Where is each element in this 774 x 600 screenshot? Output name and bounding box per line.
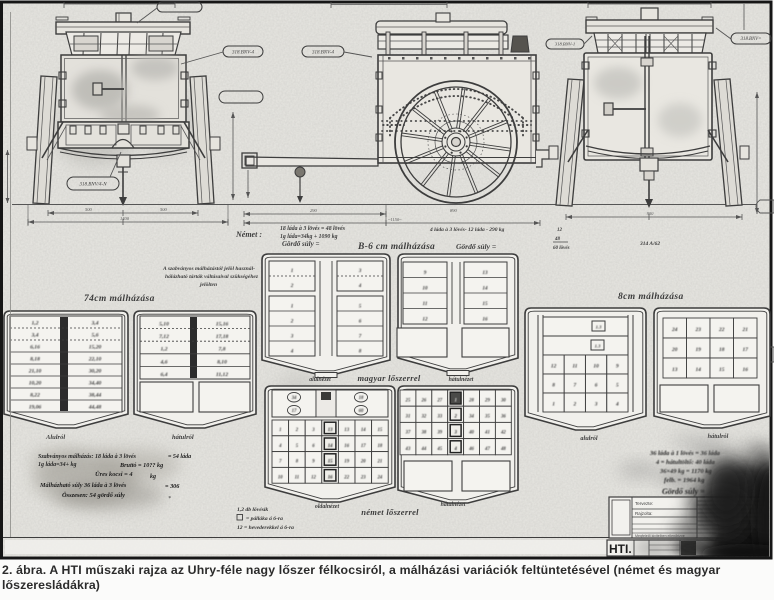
svg-text:11: 11 bbox=[295, 475, 300, 480]
svg-text:Bruttó = 10?? kg: Bruttó = 10?? kg bbox=[119, 462, 163, 469]
svg-text:21: 21 bbox=[742, 327, 749, 333]
svg-text:alulnézet: alulnézet bbox=[309, 377, 331, 383]
svg-text:2: 2 bbox=[453, 415, 457, 420]
svg-text:22,10: 22,10 bbox=[88, 357, 102, 363]
svg-text:48: 48 bbox=[500, 447, 506, 452]
svg-text:10: 10 bbox=[278, 475, 283, 480]
svg-text:318.BNV/4-N: 318.BNV/4-N bbox=[79, 182, 107, 187]
svg-text:43: 43 bbox=[405, 447, 411, 452]
svg-text:10,20: 10,20 bbox=[29, 381, 42, 387]
svg-text:23: 23 bbox=[695, 327, 702, 333]
svg-text:16: 16 bbox=[743, 367, 749, 373]
svg-text:33: 33 bbox=[436, 415, 442, 420]
svg-text:16: 16 bbox=[328, 475, 333, 480]
svg-text:48: 48 bbox=[554, 237, 561, 242]
svg-text:44,48: 44,48 bbox=[88, 405, 102, 411]
svg-text:12 = hevederekkel á 6-ra: 12 = hevederekkel á 6-ra bbox=[237, 525, 294, 531]
svg-text:8,18: 8,18 bbox=[30, 357, 40, 363]
svg-text:27: 27 bbox=[436, 398, 442, 403]
svg-text:16: 16 bbox=[344, 444, 349, 449]
svg-text:1: 1 bbox=[454, 398, 456, 403]
svg-text:318.BNV-4: 318.BNV-4 bbox=[312, 50, 335, 55]
svg-text:22: 22 bbox=[718, 327, 725, 333]
svg-text:32: 32 bbox=[420, 415, 426, 420]
svg-text:1: 1 bbox=[291, 268, 294, 274]
svg-text:30: 30 bbox=[500, 398, 506, 403]
svg-text:6,4: 6,4 bbox=[161, 372, 168, 378]
svg-text:1g láda=34+ kg: 1g láda=34+ kg bbox=[38, 462, 77, 468]
svg-text:10: 10 bbox=[593, 364, 599, 370]
svg-text:14: 14 bbox=[482, 286, 488, 292]
svg-text:10: 10 bbox=[422, 286, 428, 292]
svg-text:1,2: 1,2 bbox=[161, 347, 168, 353]
svg-text:20: 20 bbox=[360, 460, 366, 465]
svg-text:A szabványos málházástól jelöl: A szabványos málházástól jelöl használ- bbox=[162, 266, 255, 272]
svg-text:1: 1 bbox=[279, 428, 281, 433]
svg-text:Német :: Német : bbox=[235, 230, 262, 239]
svg-text:18 láda à 3 lövés = 48 lövés: 18 láda à 3 lövés = 48 lövés bbox=[280, 226, 346, 232]
svg-text:kg: kg bbox=[150, 474, 156, 480]
svg-text:2. ábra. A HTI műszaki rajza a: 2. ábra. A HTI műszaki rajza az Uhry-fél… bbox=[2, 563, 721, 577]
svg-text:17: 17 bbox=[743, 347, 749, 353]
svg-text:11,12: 11,12 bbox=[216, 372, 228, 378]
svg-text:37: 37 bbox=[405, 431, 411, 436]
svg-text:1: 1 bbox=[552, 402, 555, 408]
svg-text:Gördő súly =: Gördő súly = bbox=[456, 242, 496, 251]
svg-text:34,40: 34,40 bbox=[88, 381, 102, 387]
svg-text:Málházható súly 36 láda à 3 lö: Málházható súly 36 láda à 3 lövés bbox=[39, 482, 127, 489]
svg-text:12: 12 bbox=[557, 228, 563, 233]
svg-text:4: 4 bbox=[290, 349, 294, 355]
svg-text:13: 13 bbox=[672, 367, 678, 373]
svg-text:1: 1 bbox=[291, 304, 294, 310]
svg-text:2: 2 bbox=[573, 402, 577, 408]
svg-text:24: 24 bbox=[377, 475, 383, 480]
svg-text:18: 18 bbox=[359, 396, 364, 401]
svg-text:2: 2 bbox=[295, 428, 299, 433]
svg-text:B-6 cm málházása: B-6 cm málházása bbox=[357, 242, 435, 252]
svg-text:60 lövés: 60 lövés bbox=[553, 246, 570, 251]
svg-text:5: 5 bbox=[359, 304, 362, 310]
svg-text:1.3: 1.3 bbox=[595, 344, 601, 349]
svg-text:1.3: 1.3 bbox=[596, 325, 602, 330]
svg-text:24: 24 bbox=[671, 327, 678, 333]
svg-text:318.BNV-4: 318.BNV-4 bbox=[232, 50, 255, 55]
svg-text:12: 12 bbox=[422, 317, 428, 323]
svg-text:4: 4 bbox=[278, 444, 282, 449]
svg-text:17: 17 bbox=[292, 409, 297, 414]
svg-text:HTI.: HTI. bbox=[609, 542, 632, 556]
svg-text:Alulról: Alulról bbox=[45, 434, 65, 441]
svg-text:9: 9 bbox=[424, 270, 427, 276]
svg-text:3: 3 bbox=[453, 431, 457, 436]
svg-text:7: 7 bbox=[359, 334, 362, 340]
svg-text:314 A/62: 314 A/62 bbox=[639, 241, 660, 247]
svg-text:3: 3 bbox=[358, 268, 362, 274]
svg-text:2: 2 bbox=[290, 283, 294, 289]
svg-text:hálázható tárták váltásaival s: hálázható tárták váltásaival szükségéhez bbox=[165, 274, 259, 280]
svg-text:41: 41 bbox=[484, 431, 490, 436]
svg-text:15: 15 bbox=[378, 428, 383, 433]
svg-text:500: 500 bbox=[85, 207, 93, 212]
svg-text:Tervezte:: Tervezte: bbox=[635, 501, 653, 506]
svg-text:15: 15 bbox=[328, 460, 333, 465]
svg-text:8: 8 bbox=[359, 349, 362, 355]
svg-text:8,22: 8,22 bbox=[30, 393, 40, 399]
svg-text:5: 5 bbox=[616, 383, 619, 389]
svg-text:15,20: 15,20 bbox=[89, 345, 102, 351]
svg-text:11: 11 bbox=[423, 301, 428, 307]
svg-text:22: 22 bbox=[343, 475, 349, 480]
svg-text:890: 890 bbox=[450, 208, 458, 213]
svg-text:7,8: 7,8 bbox=[219, 347, 226, 353]
svg-text:oldalnézet: oldalnézet bbox=[315, 504, 340, 510]
svg-text:31: 31 bbox=[405, 415, 411, 420]
svg-text:17: 17 bbox=[361, 444, 366, 449]
svg-text:60: 60 bbox=[359, 409, 364, 414]
svg-text:36: 36 bbox=[500, 415, 506, 420]
svg-text:német lőszerrel: német lőszerrel bbox=[361, 507, 419, 517]
svg-text:3: 3 bbox=[290, 334, 294, 340]
svg-text:3,4: 3,4 bbox=[31, 333, 39, 339]
svg-text:1400: 1400 bbox=[120, 216, 130, 221]
svg-text:3,4: 3,4 bbox=[91, 321, 99, 327]
svg-text:3: 3 bbox=[311, 428, 315, 433]
svg-text:25: 25 bbox=[405, 398, 411, 403]
svg-text:45: 45 bbox=[436, 447, 442, 452]
svg-text:= 306: = 306 bbox=[165, 483, 180, 490]
svg-text:8cm málházása: 8cm málházása bbox=[618, 292, 684, 302]
svg-text:13: 13 bbox=[328, 428, 333, 433]
svg-text:8,10: 8,10 bbox=[217, 359, 227, 365]
svg-text:1,2: 1,2 bbox=[32, 321, 39, 327]
svg-text:13: 13 bbox=[344, 428, 349, 433]
svg-text:15: 15 bbox=[482, 301, 488, 307]
svg-text:6: 6 bbox=[359, 319, 362, 325]
svg-text:42: 42 bbox=[500, 431, 506, 436]
svg-text:47: 47 bbox=[484, 447, 490, 452]
svg-text:40: 40 bbox=[468, 431, 474, 436]
svg-text:21,10: 21,10 bbox=[28, 369, 42, 375]
svg-text:Üres kocsi = 4: Üres kocsi = 4 bbox=[95, 471, 133, 478]
svg-text:13: 13 bbox=[482, 270, 488, 276]
svg-text:Szabványos málházás: 18 láda à: Szabványos málházás: 18 láda à 3 lövés bbox=[38, 454, 137, 460]
svg-text:= pálláka á 6-ra: = pálláka á 6-ra bbox=[246, 516, 283, 522]
svg-text:1,2 db lövésik: 1,2 db lövésik bbox=[237, 507, 268, 513]
svg-text:29: 29 bbox=[484, 398, 490, 403]
svg-text:19: 19 bbox=[696, 347, 702, 353]
svg-text:44: 44 bbox=[420, 447, 426, 452]
svg-text:30,20: 30,20 bbox=[88, 369, 102, 375]
svg-text:Rajzolta:: Rajzolta: bbox=[635, 511, 653, 516]
svg-text:*: * bbox=[168, 496, 171, 502]
svg-text:4: 4 bbox=[453, 447, 457, 452]
svg-text:5,6: 5,6 bbox=[92, 333, 99, 339]
svg-text:jelölten: jelölten bbox=[199, 282, 217, 288]
svg-text:46: 46 bbox=[468, 447, 474, 452]
svg-text:4 láda à 3 lövés- 12 láda -: 4 láda à 3 lövés- 12 láda - 290 kg bbox=[429, 227, 505, 233]
svg-text:35: 35 bbox=[484, 415, 490, 420]
svg-text:26: 26 bbox=[420, 398, 426, 403]
svg-text:4: 4 bbox=[358, 283, 362, 289]
svg-text:15,16: 15,16 bbox=[216, 321, 229, 327]
svg-text:Összesen: 54 gördő súly: Összesen: 54 gördő súly bbox=[62, 492, 125, 499]
svg-text:39: 39 bbox=[436, 431, 442, 436]
svg-text:7: 7 bbox=[574, 383, 577, 389]
svg-text:8: 8 bbox=[552, 383, 555, 389]
svg-text:900: 900 bbox=[647, 211, 655, 216]
svg-text:14: 14 bbox=[361, 428, 366, 433]
svg-text:290: 290 bbox=[310, 208, 318, 213]
svg-text:hátulról: hátulról bbox=[172, 434, 194, 441]
svg-text:12: 12 bbox=[311, 475, 316, 480]
svg-text:alulról: alulról bbox=[580, 435, 597, 442]
svg-text:9: 9 bbox=[616, 364, 619, 370]
svg-text:34: 34 bbox=[291, 396, 297, 401]
svg-text:18: 18 bbox=[719, 347, 725, 353]
svg-text:= 54 láda: = 54 láda bbox=[168, 454, 191, 460]
svg-text:Gördő súly =: Gördő súly = bbox=[282, 240, 319, 248]
svg-text:14: 14 bbox=[696, 367, 702, 373]
svg-text:12: 12 bbox=[551, 364, 557, 370]
svg-text:magyar lőszerrel: magyar lőszerrel bbox=[357, 373, 420, 383]
svg-text:4,6: 4,6 bbox=[160, 359, 168, 365]
svg-text:19,06: 19,06 bbox=[29, 405, 42, 411]
svg-text:318.BNV-1: 318.BNV-1 bbox=[555, 42, 575, 47]
svg-text:500: 500 bbox=[160, 207, 168, 212]
svg-text:19: 19 bbox=[344, 460, 349, 465]
svg-text:6: 6 bbox=[595, 383, 598, 389]
svg-text:14: 14 bbox=[328, 444, 333, 449]
svg-text:23: 23 bbox=[360, 475, 366, 480]
svg-text:38: 38 bbox=[420, 431, 426, 436]
svg-text:hátulnézet: hátulnézet bbox=[441, 502, 466, 508]
svg-text:28: 28 bbox=[468, 398, 474, 403]
svg-text:lőszeresládákra): lőszeresládákra) bbox=[2, 578, 100, 592]
svg-text:4: 4 bbox=[615, 402, 619, 408]
svg-text:2: 2 bbox=[290, 319, 294, 325]
svg-text:~1150~: ~1150~ bbox=[388, 217, 402, 222]
svg-text:18: 18 bbox=[378, 444, 383, 449]
svg-text:7,12: 7,12 bbox=[159, 334, 169, 340]
svg-text:318.BNV=: 318.BNV= bbox=[741, 37, 762, 42]
svg-text:20: 20 bbox=[671, 347, 678, 353]
svg-text:34: 34 bbox=[468, 415, 474, 420]
svg-text:11: 11 bbox=[572, 364, 577, 370]
svg-text:hátulnézet: hátulnézet bbox=[449, 377, 474, 383]
svg-text:16: 16 bbox=[482, 317, 488, 323]
svg-text:74cm málházása: 74cm málházása bbox=[84, 294, 155, 304]
svg-text:15: 15 bbox=[719, 367, 725, 373]
svg-text:3: 3 bbox=[594, 402, 598, 408]
svg-text:6,16: 6,16 bbox=[30, 345, 40, 351]
svg-text:21: 21 bbox=[377, 460, 383, 465]
svg-text:17,18: 17,18 bbox=[216, 334, 229, 340]
svg-text:5,10: 5,10 bbox=[159, 321, 169, 327]
svg-text:38,44: 38,44 bbox=[88, 393, 102, 399]
